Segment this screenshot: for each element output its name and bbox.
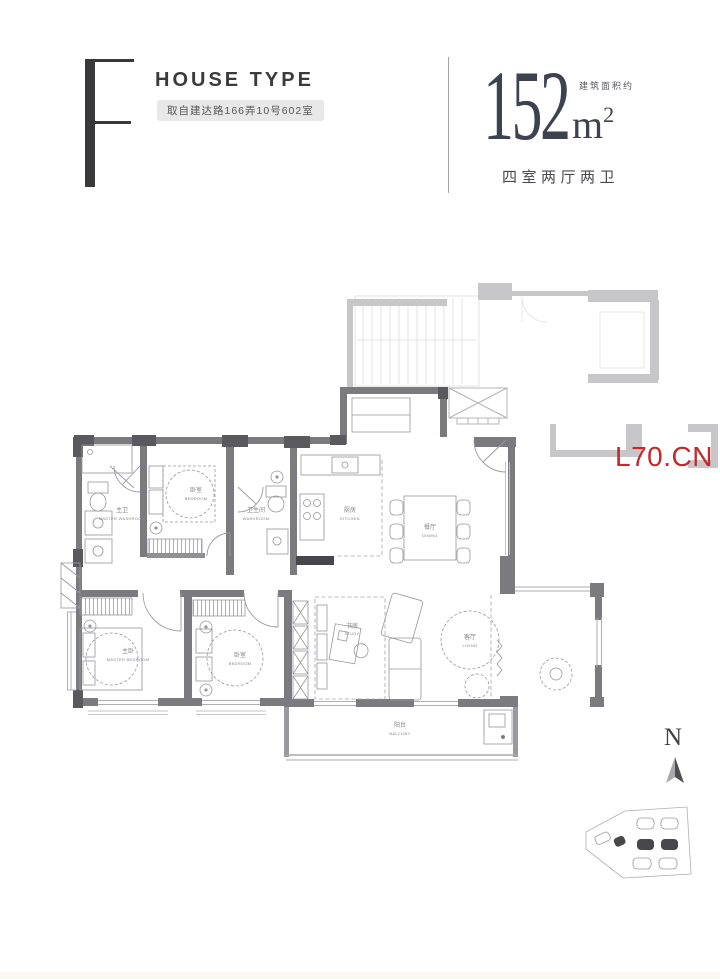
north-label: N — [664, 724, 682, 752]
label-balcony-en: BALCONY — [389, 731, 410, 736]
label-bedroom-south-en: BEDROOM — [229, 661, 252, 666]
label-bedroom-north-en: BEDROOM — [185, 496, 208, 501]
label-washroom-en: WASHROOM — [243, 516, 270, 521]
label-living-en: LIVING — [463, 643, 478, 648]
label-study-en: STUDY — [344, 631, 359, 636]
label-study-zh: 书房 — [346, 622, 358, 630]
label-kitchen-zh: 厨房 — [344, 506, 356, 514]
label-dining-zh: 餐厅 — [424, 523, 436, 531]
label-master-washroom-en: MASTER WASHROOM — [99, 516, 146, 521]
label-master-bedroom-zh: 主卧 — [122, 647, 134, 655]
windows — [67, 462, 602, 706]
bottom-edge-artifact — [0, 972, 720, 979]
label-bedroom-south-zh: 卧室 — [234, 651, 246, 659]
neighbor-unit-interior — [522, 297, 644, 368]
label-dining-en: DINING — [422, 533, 438, 538]
watermark: L70.CN — [615, 441, 713, 473]
stairwell — [355, 296, 479, 386]
ac-fan-icon — [84, 471, 283, 696]
elevator-shaft — [449, 388, 507, 424]
label-master-washroom-zh: 主卫 — [116, 506, 128, 514]
label-living-zh: 客厅 — [464, 633, 476, 641]
site-keyplan — [586, 807, 691, 878]
balcony-walls — [88, 707, 518, 760]
label-master-bedroom-en: MASTER BEDROOM — [107, 657, 150, 662]
label-balcony-zh: 阳台 — [394, 721, 406, 729]
label-bedroom-north-zh: 卧室 — [190, 486, 202, 494]
north-arrow-icon — [666, 757, 684, 783]
floorplan-canvas: 主卫 MASTER WASHROOM 卧室 BEDROOM 卫生间 WASHRO… — [0, 0, 720, 979]
label-kitchen-en: KITCHEN — [340, 516, 360, 521]
label-washroom-zh: 卫生间 — [247, 506, 265, 514]
